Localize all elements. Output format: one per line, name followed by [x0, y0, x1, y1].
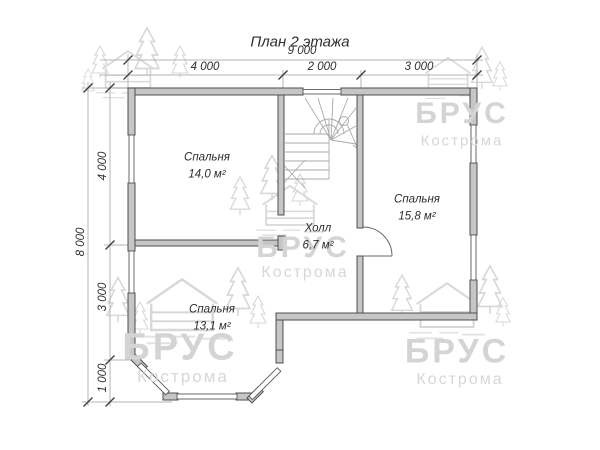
room-label-bedroom-top-left: Спальня 14,0 м²	[184, 149, 230, 182]
room-name: Спальня	[394, 191, 440, 208]
dim-left-total: 8 000	[75, 228, 87, 257]
watermark-city-text: Кострома	[416, 371, 503, 389]
room-label-hall: Холл 6,7 м²	[303, 220, 334, 253]
window-bay-bottom	[177, 394, 237, 399]
dim-left-segment-3: 1 000	[97, 364, 109, 393]
staircase	[279, 98, 358, 188]
dim-left-segment-2: 3 000	[97, 283, 109, 312]
door-swing-arc	[363, 227, 392, 256]
room-area: 13,1 м²	[189, 318, 235, 335]
room-label-bedroom-bottom: Спальня 13,1 м²	[189, 301, 235, 334]
room-area: 15,8 м²	[394, 208, 440, 225]
window-right-lower	[471, 235, 476, 280]
floor-plan-page: БРУС Кострома БРУС Кострома БРУС Костром…	[0, 0, 600, 450]
dim-top-segment-2: 2 000	[308, 61, 337, 73]
room-area: 6,7 м²	[303, 237, 334, 254]
watermark-brand-text: БРУС	[405, 333, 509, 372]
door-bedroom-right	[363, 227, 392, 256]
room-name: Холл	[303, 220, 334, 237]
window-left-upper	[129, 135, 134, 183]
room-label-bedroom-right: Спальня 15,8 м²	[394, 191, 440, 224]
window-stairs-top	[303, 90, 341, 95]
dim-left-segment-1: 4 000	[97, 152, 109, 181]
dim-top-total: 9 000	[288, 45, 317, 57]
watermark-city-text: Кострома	[421, 133, 504, 150]
room-name: Спальня	[184, 149, 230, 166]
dim-top-segment-1: 4 000	[191, 61, 220, 73]
window-left-lower	[129, 251, 134, 293]
room-name: Спальня	[189, 301, 235, 318]
dim-top-segment-3: 3 000	[405, 61, 434, 73]
watermark-brand-text: БРУС	[415, 97, 509, 131]
watermark-city-text: Кострома	[137, 367, 229, 387]
watermark-city-text: Кострома	[261, 264, 348, 282]
window-bay-right	[249, 368, 281, 400]
floor-plan-drawing	[0, 0, 600, 450]
room-area: 14,0 м²	[184, 166, 230, 183]
